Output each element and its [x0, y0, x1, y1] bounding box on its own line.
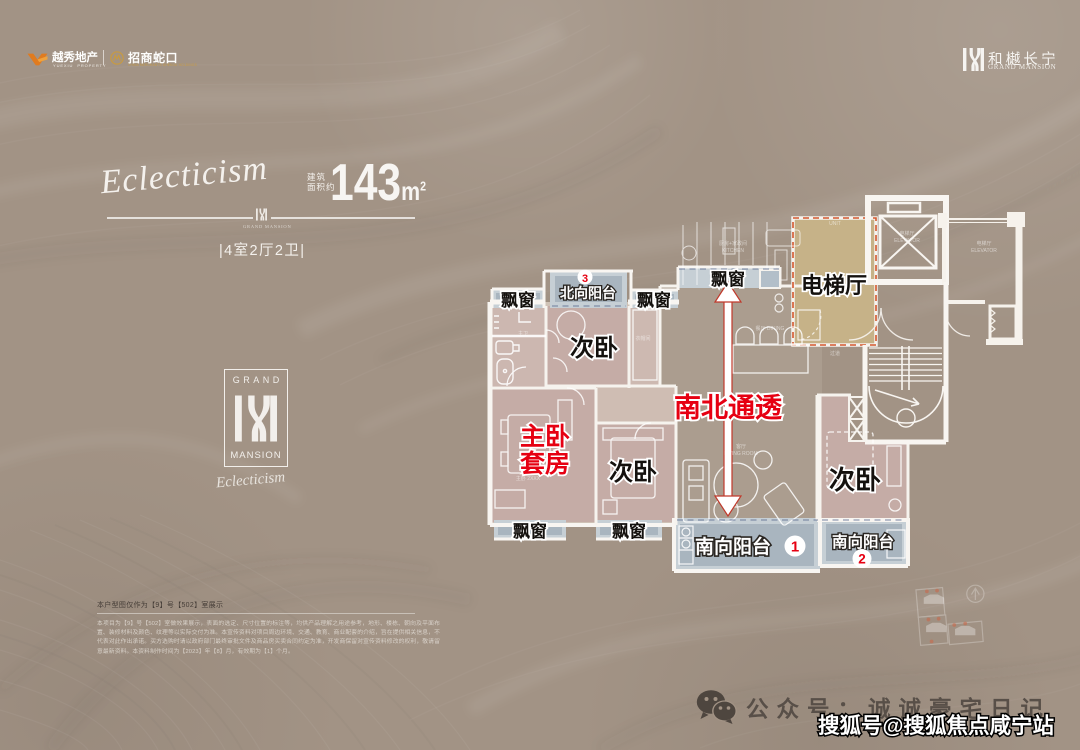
svg-text:南向阳台: 南向阳台: [832, 532, 894, 551]
svg-text:飘窗: 飘窗: [637, 290, 671, 310]
svg-text:3: 3: [582, 273, 588, 285]
svg-text:飘窗: 飘窗: [711, 269, 745, 289]
svg-text:电梯厅: 电梯厅: [899, 230, 914, 237]
svg-text:过道: 过道: [830, 350, 840, 357]
svg-text:LIVING ROOM: LIVING ROOM: [724, 451, 757, 457]
svg-text:套房: 套房: [519, 449, 570, 478]
svg-text:飘窗: 飘窗: [513, 521, 547, 541]
svg-text:北向阳台: 北向阳台: [560, 285, 616, 301]
svg-text:客厅: 客厅: [736, 443, 746, 450]
svg-text:厨房+家政间: 厨房+家政间: [719, 240, 747, 247]
svg-text:1: 1: [791, 539, 799, 556]
svg-text:ELEVATOR: ELEVATOR: [894, 238, 920, 244]
svg-text:衣帽间: 衣帽间: [635, 335, 650, 342]
svg-text:电梯厅: 电梯厅: [976, 240, 991, 247]
svg-text:次卧: 次卧: [609, 459, 657, 486]
svg-text:KITCHEN: KITCHEN: [722, 248, 744, 254]
svg-text:主卧: 主卧: [520, 423, 570, 451]
svg-text:餐厅 DINING: 餐厅 DINING: [756, 325, 785, 332]
svg-text:2: 2: [858, 552, 866, 567]
svg-text:次卧: 次卧: [570, 335, 618, 362]
svg-text:电梯厅: 电梯厅: [801, 273, 867, 298]
svg-text:飘窗: 飘窗: [612, 521, 646, 541]
svg-text:南北通透: 南北通透: [674, 393, 782, 423]
svg-text:搜狐号@搜狐焦点咸宁站: 搜狐号@搜狐焦点咸宁站: [818, 713, 1054, 738]
svg-text:ELEVATOR: ELEVATOR: [971, 248, 997, 254]
svg-text:主卫: 主卫: [518, 330, 528, 337]
svg-text:UNIT: UNIT: [829, 221, 841, 227]
svg-text:南向阳台: 南向阳台: [695, 535, 771, 558]
svg-text:飘窗: 飘窗: [501, 290, 535, 310]
svg-text:次卧: 次卧: [829, 465, 881, 495]
